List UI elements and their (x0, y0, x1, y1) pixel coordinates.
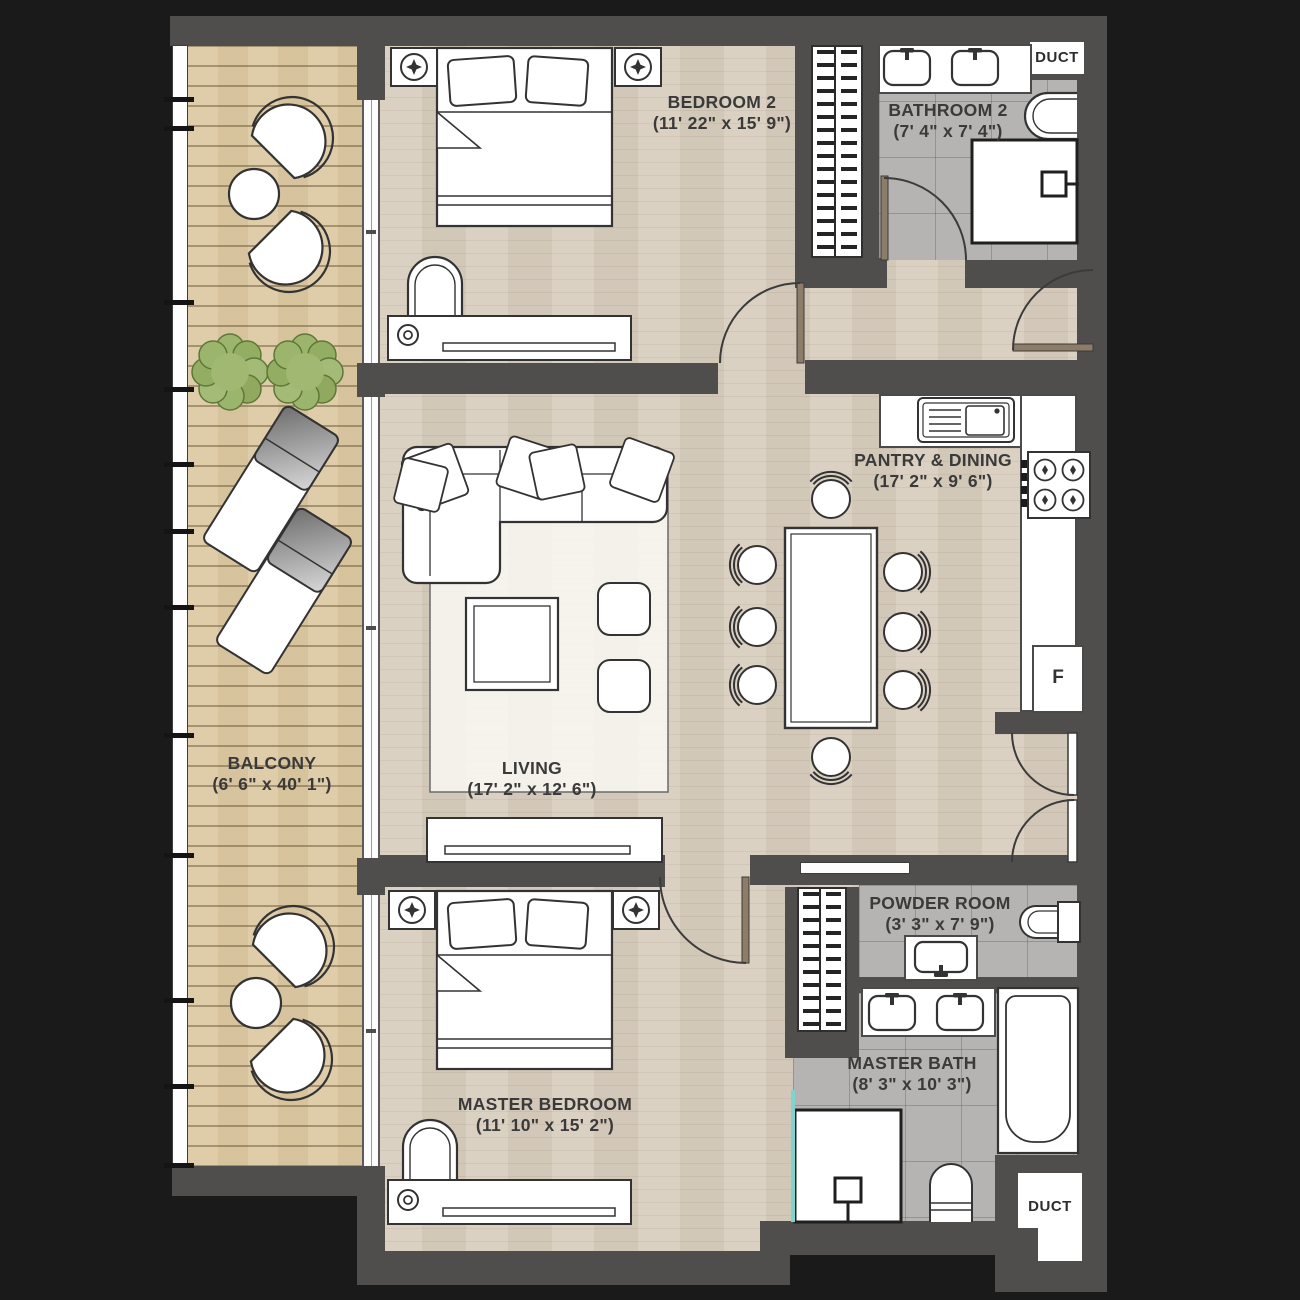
door-entry (1013, 270, 1093, 351)
room-name: PANTRY & DINING (854, 450, 1012, 470)
room-name: BALCONY (228, 753, 317, 773)
dining-table (785, 528, 877, 728)
room-dims: (11' 10" x 15' 2") (476, 1115, 614, 1135)
room-dims: (17' 2" x 9' 6") (873, 471, 992, 491)
bed-bedroom2 (437, 48, 612, 226)
dining-chair (884, 611, 930, 652)
bathroom2-shower (972, 140, 1079, 243)
room-name: MASTER BEDROOM (458, 1094, 632, 1114)
room-name: LIVING (502, 758, 562, 778)
label-fridge: F (1038, 668, 1078, 687)
label-duct-bottom: DUCT (1018, 1198, 1082, 1216)
dining-chair (730, 606, 776, 647)
plant (192, 334, 268, 410)
room-name: MASTER BATH (847, 1053, 976, 1073)
nightstand (615, 48, 661, 86)
master-toilet (930, 1164, 972, 1222)
label-balcony: BALCONY (6' 6" x 40' 1") (186, 753, 358, 795)
ottoman (598, 583, 650, 635)
nightstand (389, 891, 435, 929)
coffee-table (466, 598, 558, 690)
tv-console-living (427, 818, 662, 862)
door-bedroom2 (720, 283, 804, 363)
room-name: POWDER ROOM (869, 893, 1010, 913)
balcony-table (231, 978, 281, 1028)
label-powder-room: POWDER ROOM (3' 3" x 7' 9") (840, 893, 1040, 935)
double-door-entry (1012, 733, 1077, 862)
label-master-bath: MASTER BATH (8' 3" x 10' 3") (812, 1053, 1012, 1095)
room-name: BATHROOM 2 (888, 100, 1007, 120)
bathroom2-vanity (879, 45, 1031, 93)
room-dims: (3' 3" x 7' 9") (885, 914, 994, 934)
label-living: LIVING (17' 2" x 12' 6") (407, 758, 657, 800)
room-dims: (17' 2" x 12' 6") (467, 779, 596, 799)
nightstand (391, 48, 437, 86)
room-dims: (7' 4" x 7' 4") (893, 121, 1002, 141)
door-bathroom2 (881, 176, 966, 260)
dining-chair (884, 551, 930, 592)
powder-vanity (905, 936, 977, 980)
master-dresser (388, 1180, 631, 1224)
label-duct-top: DUCT (1030, 49, 1084, 67)
ottoman (598, 660, 650, 712)
room-dims: (6' 6" x 40' 1") (212, 774, 331, 794)
plant (267, 334, 343, 410)
dining-chair (810, 738, 851, 784)
room-dims: (8' 3" x 10' 3") (852, 1074, 971, 1094)
label-master-bedroom: MASTER BEDROOM (11' 10" x 15' 2") (420, 1094, 670, 1136)
nightstand (613, 891, 659, 929)
bedroom2-chair (408, 257, 462, 321)
door-master-bedroom (660, 877, 749, 963)
dining-chair (884, 669, 930, 710)
room-name: BEDROOM 2 (668, 92, 777, 112)
bed-master (437, 891, 612, 1069)
room-dims: (11' 22" x 15' 9") (653, 113, 791, 133)
dining-chair (730, 544, 776, 585)
dining-chair (730, 664, 776, 705)
floor-plan: BEDROOM 2 (11' 22" x 15' 9") BATHROOM 2 … (0, 0, 1300, 1300)
label-bedroom2: BEDROOM 2 (11' 22" x 15' 9") (597, 92, 847, 134)
bedroom2-dresser (388, 316, 631, 360)
master-shower (795, 1110, 901, 1222)
kitchen-sink-unit (918, 398, 1014, 442)
master-vanity (862, 988, 995, 1036)
label-bathroom2: BATHROOM 2 (7' 4" x 7' 4") (848, 100, 1048, 142)
label-pantry-dining: PANTRY & DINING (17' 2" x 9' 6") (808, 450, 1058, 492)
balcony-table (229, 169, 279, 219)
